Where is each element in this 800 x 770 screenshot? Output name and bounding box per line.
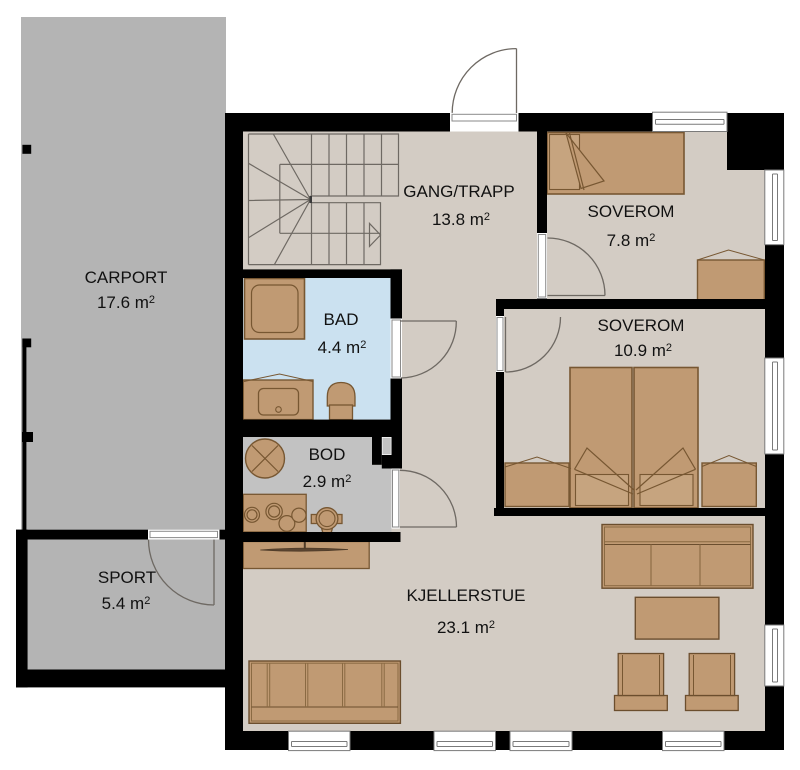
svg-text:7.8 m2: 7.8 m2 (607, 231, 656, 250)
svg-text:10.9 m2: 10.9 m2 (614, 341, 672, 360)
svg-text:23.1 m2: 23.1 m2 (437, 618, 495, 637)
svg-text:17.6 m2: 17.6 m2 (97, 293, 155, 312)
svg-text:CARPORT: CARPORT (85, 268, 168, 287)
svg-text:KJELLERSTUE: KJELLERSTUE (406, 586, 525, 605)
svg-text:SOVEROM: SOVEROM (598, 316, 685, 335)
svg-text:5.4 m2: 5.4 m2 (102, 594, 151, 613)
svg-text:SPORT: SPORT (98, 568, 156, 587)
svg-text:SOVEROM: SOVEROM (588, 202, 675, 221)
svg-text:2.9 m2: 2.9 m2 (303, 472, 352, 491)
svg-text:GANG/TRAPP: GANG/TRAPP (403, 182, 514, 201)
svg-text:BAD: BAD (324, 310, 359, 329)
svg-text:BOD: BOD (309, 445, 346, 464)
svg-text:4.4 m2: 4.4 m2 (318, 338, 367, 357)
svg-text:13.8 m2: 13.8 m2 (432, 210, 490, 229)
